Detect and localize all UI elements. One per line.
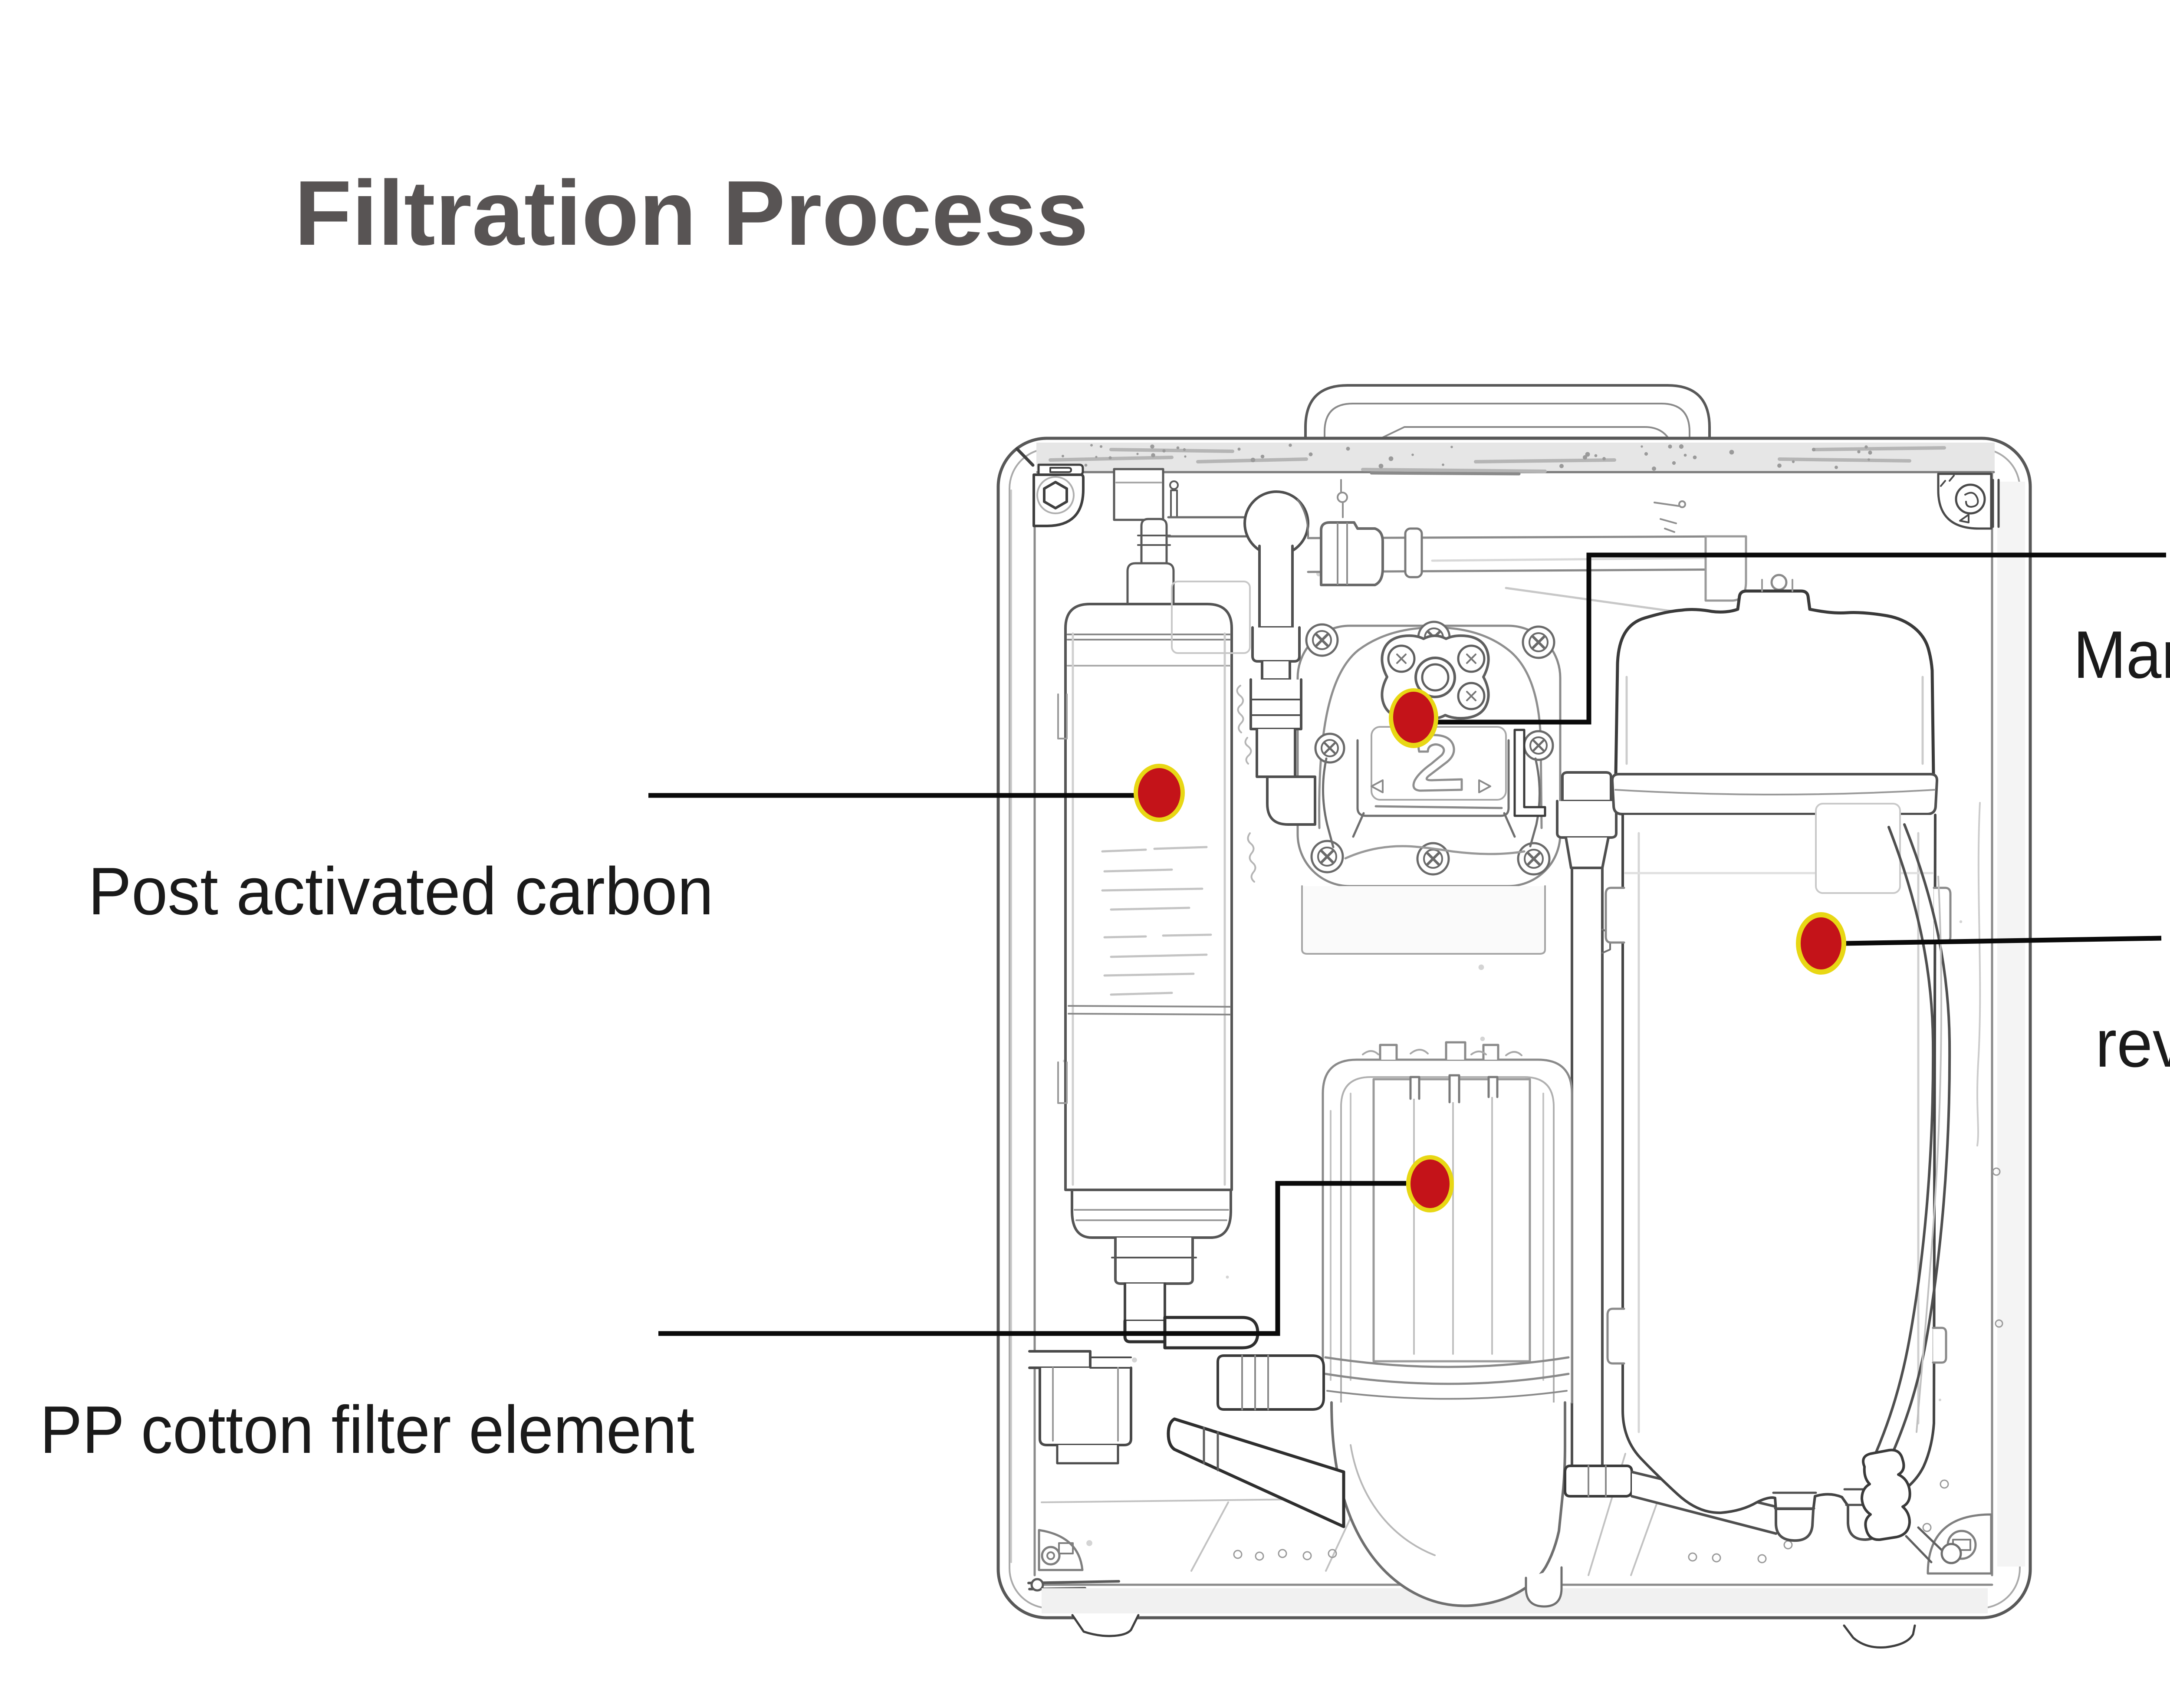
svg-text:Manual pressurization device: Manual pressurization device <box>2073 617 2170 692</box>
svg-text:reverse osmosis membrane: reverse osmosis membrane <box>2095 1006 2170 1081</box>
svg-text:Post activated carbon: Post activated carbon <box>88 854 713 929</box>
svg-text:Filtration Process: Filtration Process <box>294 161 1088 264</box>
svg-text:PP cotton filter element: PP cotton filter element <box>40 1392 694 1467</box>
